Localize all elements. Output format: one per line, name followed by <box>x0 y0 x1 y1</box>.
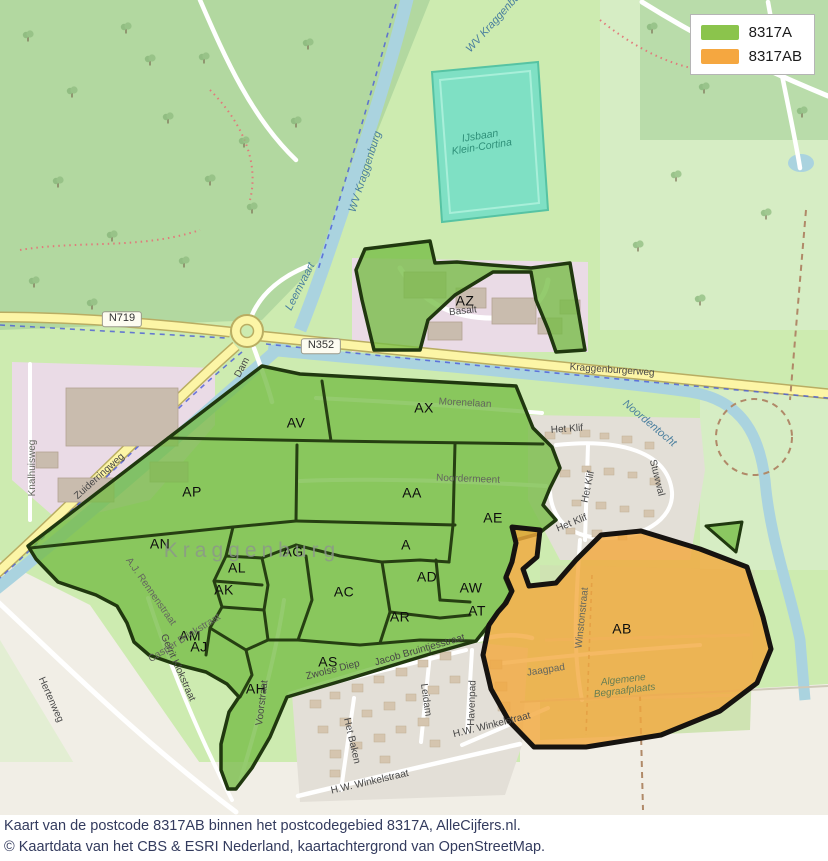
region-label-a: A <box>401 538 411 553</box>
region-label-ak: AK <box>214 583 233 598</box>
street-label-aj-rennenstraat: A.J. Rennenstraat <box>123 556 178 628</box>
region-label-ax: AX <box>414 401 433 416</box>
street-label-winstonstraat: Winstonstraat <box>575 587 592 649</box>
region-label-ap: AP <box>182 485 201 500</box>
map-canvas[interactable]: AZAXAVAPAAAEANAAGALAKACADAWARATAMAJABASA… <box>0 0 828 815</box>
street-label-basalt: Basalt <box>449 305 478 318</box>
street-label-morenelaan: Morenelaan <box>438 397 491 410</box>
street-label-jaagpad: Jaagpad <box>526 663 566 679</box>
water-label-wv-kraggenburg-top: WV Kraggenburg <box>464 0 529 55</box>
road-shield-n719: N719 <box>102 311 142 327</box>
road-shield-n352: N352 <box>301 338 341 354</box>
street-label-zwolse-diep: Zwolse Diep <box>305 659 361 683</box>
postcode-map-page: AZAXAVAPAAAEANAAGALAKACADAWARATAMAJABASA… <box>0 0 828 861</box>
region-label-ag: AG <box>282 545 303 560</box>
region-label-at: AT <box>468 604 486 619</box>
region-label-aw: AW <box>460 581 483 596</box>
region-label-ad: AD <box>417 570 437 585</box>
street-label-noordermeent: Noordermeent <box>436 474 500 487</box>
street-label-leidam: Leidam <box>418 683 433 717</box>
water-label-wv-kraggenburg: WV Kraggenburg <box>347 130 384 214</box>
legend-label-8317ab: 8317AB <box>749 48 802 65</box>
caption: Kaart van de postcode 8317AB binnen het … <box>0 815 828 861</box>
region-label-al: AL <box>228 561 246 576</box>
street-label-stuwwal: Stuwwal <box>646 459 665 498</box>
street-label-dam: Dam <box>233 356 252 380</box>
water-label-noordentocht: Noordentocht <box>620 398 678 449</box>
caption-line-1: Kaart van de postcode 8317AB binnen het … <box>4 816 828 836</box>
street-label-kraggenburgerweg: Kraggenburgerweg <box>569 363 655 379</box>
region-label-an: AN <box>150 537 170 552</box>
caption-line-2: © Kaartdata van het CBS & ESRI Nederland… <box>4 837 828 857</box>
street-label-hw-winkelstraat-1: H.W. Winkelstraat <box>330 769 410 797</box>
region-label-ae: AE <box>483 511 502 526</box>
region-label-aj: AJ <box>190 640 207 655</box>
legend-swatch-8317a <box>701 25 739 40</box>
legend: 8317A 8317AB <box>690 14 815 75</box>
street-label-hertenweg: Hertenweg <box>35 676 64 724</box>
street-label-hw-winkelstraat-2: H.W. Winkelstraat <box>452 711 532 740</box>
legend-label-8317a: 8317A <box>749 24 792 41</box>
water-label-leemvaart: Leemvaart <box>284 261 318 313</box>
place-label-begraafplaats: Algemene Begraafplaats <box>592 672 656 700</box>
street-label-knalhuisweg: Knalhuisweg <box>28 440 39 497</box>
place-label-kraggenburg: Kraggenburg <box>164 540 340 562</box>
street-label-gerrit-klokstraat: Gerrit Klokstraat <box>158 633 197 703</box>
street-label-zuiderringweg: Zuiderringweg <box>73 452 127 502</box>
street-label-het-klif-3: Het Klif <box>555 513 589 535</box>
region-label-ar: AR <box>390 610 410 625</box>
region-label-av: AV <box>287 416 305 431</box>
street-label-havenpad: Havenpad <box>467 680 479 726</box>
street-label-het-klif-1: Het Klif <box>551 424 584 437</box>
region-label-az: AZ <box>456 294 475 309</box>
legend-row-8317ab: 8317AB <box>701 48 802 65</box>
region-label-am: AM <box>179 629 201 644</box>
region-label-ah: AH <box>246 682 266 697</box>
region-label-as: AS <box>318 655 337 670</box>
place-label-ijsbaan: IJsbaan Klein-Cortina <box>449 126 512 157</box>
region-label-ab: AB <box>612 622 631 637</box>
map-labels-layer: AZAXAVAPAAAEANAAGALAKACADAWARATAMAJABASA… <box>0 0 828 815</box>
street-label-het-klif-2: Het Klif <box>581 470 598 504</box>
street-label-casper-brinkstraat: Casper Brinkstraat <box>147 613 223 666</box>
legend-swatch-8317ab <box>701 49 739 64</box>
region-label-ac: AC <box>334 585 354 600</box>
region-label-aa: AA <box>402 486 421 501</box>
street-label-het-baken: Het Baken <box>341 717 362 765</box>
legend-row-8317a: 8317A <box>701 24 802 41</box>
street-label-voorstraat: Voorstraat <box>255 680 271 727</box>
street-label-jacob-bruintjesstraat: Jacob Bruintjesstraat <box>374 633 467 669</box>
